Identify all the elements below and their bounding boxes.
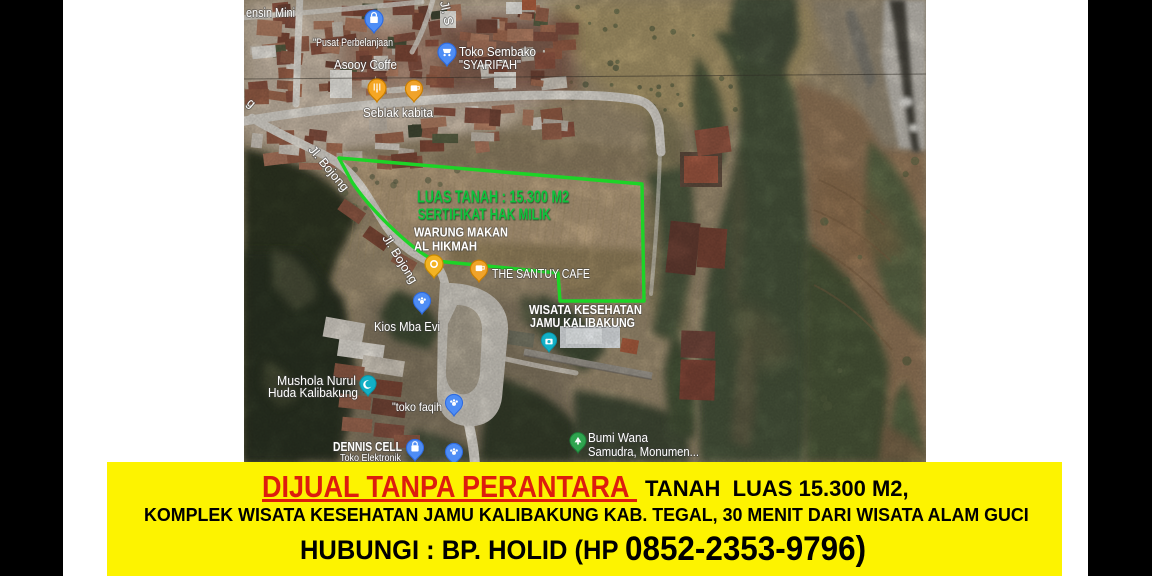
svg-text:SERTIFIKAT HAK MILIK: SERTIFIKAT HAK MILIK bbox=[418, 207, 551, 224]
svg-text:"toko faqih: "toko faqih bbox=[392, 400, 442, 414]
svg-text:AL HIKMAH: AL HIKMAH bbox=[414, 239, 477, 254]
svg-text:Asooy Coffe: Asooy Coffe bbox=[334, 58, 397, 72]
svg-text:Kios Mba Evi: Kios Mba Evi bbox=[374, 320, 440, 334]
svg-text:"Pusat Perbelanjaan: "Pusat Perbelanjaan bbox=[313, 37, 393, 49]
svg-text:Toko Elektronik: Toko Elektronik bbox=[340, 453, 402, 462]
svg-text:ensin Mini: ensin Mini bbox=[246, 6, 295, 20]
svg-text:THE SANTUY CAFE: THE SANTUY CAFE bbox=[492, 267, 590, 281]
svg-text:DENNIS CELL: DENNIS CELL bbox=[333, 439, 402, 454]
svg-text:"SYARIFAH": "SYARIFAH" bbox=[459, 58, 521, 72]
svg-text:JAMU KALIBAKUNG: JAMU KALIBAKUNG bbox=[530, 315, 635, 330]
svg-text:Seblak kabita: Seblak kabita bbox=[363, 106, 433, 120]
svg-text:LUAS TANAH : 15.300 M2: LUAS TANAH : 15.300 M2 bbox=[417, 187, 569, 207]
svg-text:Toko Sembako: Toko Sembako bbox=[459, 45, 536, 59]
svg-text:Huda Kalibakung: Huda Kalibakung bbox=[268, 386, 358, 400]
svg-text:Samudra, Monumen...: Samudra, Monumen... bbox=[588, 445, 699, 459]
svg-text:Bumi Wana: Bumi Wana bbox=[588, 431, 648, 445]
svg-text:WARUNG MAKAN: WARUNG MAKAN bbox=[414, 225, 508, 240]
